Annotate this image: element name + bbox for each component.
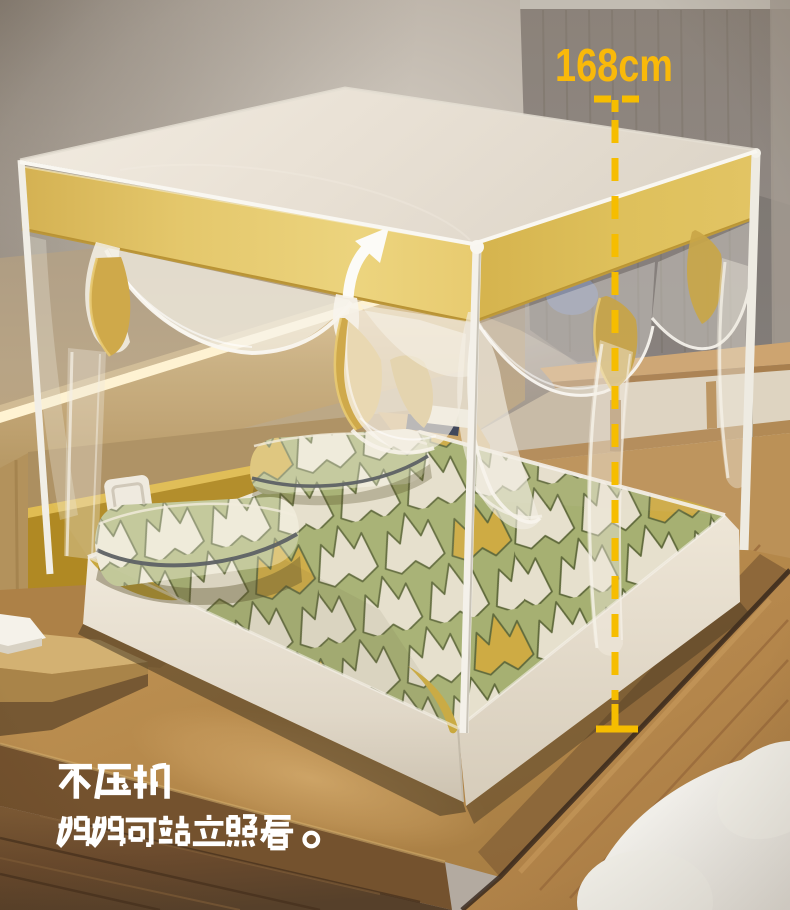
svg-text:168cm: 168cm — [555, 39, 673, 91]
